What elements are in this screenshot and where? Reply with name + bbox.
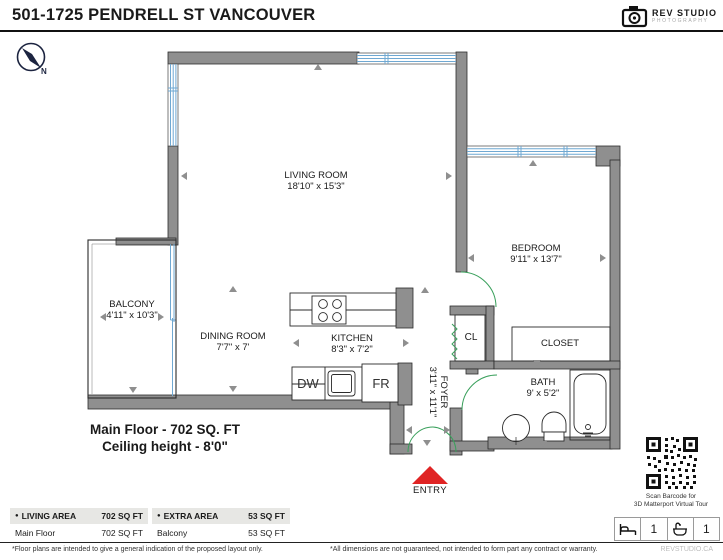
living-area-table: ● LIVING AREA 702 SQ FT Main Floor 702 S… — [10, 508, 148, 540]
qr-caption: Scan Barcode for 3D Matterport Virtual T… — [616, 493, 723, 509]
floor-plan-page: 501-1725 PENDRELL ST VANCOUVER REV STUDI… — [0, 0, 723, 560]
table-row: Balcony 53 SQ FT — [152, 524, 290, 540]
entry-arrow-icon — [412, 466, 448, 484]
bullet-icon: ● — [157, 513, 161, 519]
bed-icon — [615, 518, 641, 540]
floor-title: Main Floor - 702 SQ. FT — [90, 421, 240, 438]
extra-area-table: ● EXTRA AREA 53 SQ FT Balcony 53 SQ FT — [152, 508, 290, 540]
living-area-label: LIVING AREA — [22, 511, 76, 521]
bed-count: 1 — [641, 518, 667, 540]
extra-area-header: ● EXTRA AREA 53 SQ FT — [152, 508, 290, 524]
footer-website: REVSTUDIO.CA — [660, 546, 713, 553]
floor-summary: Main Floor - 702 SQ. FT Ceiling height -… — [90, 421, 240, 455]
qr-code — [645, 436, 699, 490]
label-dishwasher: DW — [297, 376, 319, 391]
label-fridge: FR — [372, 376, 389, 391]
footer-divider — [0, 542, 723, 543]
ceiling-height: Ceiling height - 8'0" — [90, 438, 240, 455]
living-area-total: 702 SQ FT — [101, 511, 143, 521]
extra-area-label: EXTRA AREA — [164, 511, 219, 521]
label-cl-closet: CL — [465, 332, 478, 343]
floor-plan-drawing — [0, 0, 723, 560]
label-foyer: FOYER 3'11" x 11'1" — [427, 367, 449, 418]
footer-disclaimer-right: *All dimensions are not guaranteed, not … — [330, 546, 598, 553]
label-bath: BATH 9' x 5'2" — [527, 377, 560, 399]
label-balcony: BALCONY 4'11" x 10'3" — [106, 299, 157, 321]
label-closet: CLOSET — [541, 338, 579, 349]
label-living-room: LIVING ROOM 18'10" x 15'3" — [284, 170, 347, 192]
table-row: Main Floor 702 SQ FT — [10, 524, 148, 540]
label-kitchen: KITCHEN 8'3" x 7'2" — [331, 333, 373, 355]
bath-count: 1 — [694, 518, 719, 540]
label-entry: ENTRY — [413, 485, 447, 496]
bath-icon — [668, 518, 694, 540]
label-bedroom: BEDROOM 9'11" x 13'7" — [510, 243, 561, 265]
living-area-header: ● LIVING AREA 702 SQ FT — [10, 508, 148, 524]
bed-bath-summary: 1 1 — [614, 517, 720, 541]
label-dining-room: DINING ROOM 7'7" x 7' — [200, 331, 265, 353]
extra-area-total: 53 SQ FT — [248, 511, 285, 521]
footer-disclaimer-left: *Floor plans are intended to give a gene… — [12, 546, 263, 553]
bullet-icon: ● — [15, 513, 19, 519]
